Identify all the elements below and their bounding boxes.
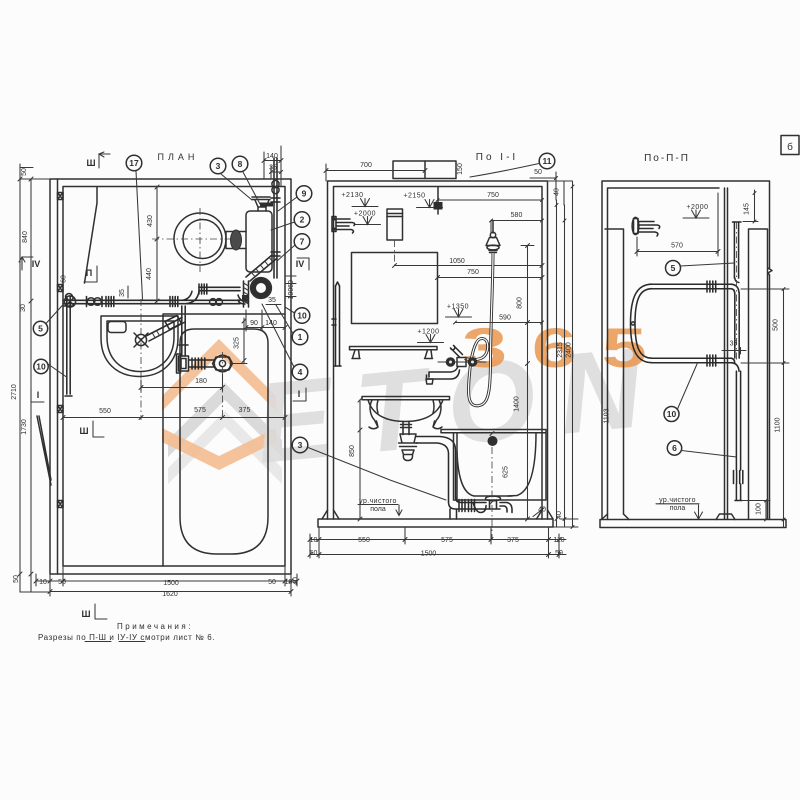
svg-text:6: 6 xyxy=(672,443,677,453)
svg-text:Ш: Ш xyxy=(86,158,95,168)
svg-text:+2000: +2000 xyxy=(686,204,708,211)
svg-text:90: 90 xyxy=(250,320,258,327)
svg-text:575: 575 xyxy=(194,407,206,414)
svg-text:ур.чистого: ур.чистого xyxy=(659,497,696,504)
svg-text:I: I xyxy=(298,389,301,399)
svg-text:700: 700 xyxy=(360,162,372,169)
svg-text:7: 7 xyxy=(300,237,305,247)
svg-text:35: 35 xyxy=(268,297,276,304)
svg-text:430: 430 xyxy=(147,215,154,227)
svg-text:375: 375 xyxy=(239,407,251,414)
svg-text:2400: 2400 xyxy=(566,342,573,358)
svg-text:840: 840 xyxy=(22,231,29,243)
svg-text:100: 100 xyxy=(756,503,763,515)
svg-text:35: 35 xyxy=(119,289,126,297)
svg-text:500: 500 xyxy=(773,319,780,331)
svg-text:60: 60 xyxy=(61,275,68,283)
svg-text:По-П-П: По-П-П xyxy=(644,153,690,164)
svg-text:1400: 1400 xyxy=(514,396,521,412)
svg-text:+2130: +2130 xyxy=(341,192,363,199)
svg-text:140: 140 xyxy=(266,153,278,160)
svg-text:+2000: +2000 xyxy=(354,211,376,218)
svg-text:ПЛАН: ПЛАН xyxy=(158,152,199,162)
svg-text:50: 50 xyxy=(13,575,20,583)
svg-text:1: 1 xyxy=(298,332,303,342)
svg-text:145: 145 xyxy=(744,203,751,215)
svg-text:2: 2 xyxy=(300,215,305,225)
svg-text:580: 580 xyxy=(511,212,523,219)
svg-text:50: 50 xyxy=(21,168,28,176)
svg-text:5: 5 xyxy=(38,324,43,334)
svg-text:Ш: Ш xyxy=(79,426,88,436)
svg-text:IV: IV xyxy=(32,259,41,269)
svg-text:1050: 1050 xyxy=(449,258,465,265)
svg-text:пола: пола xyxy=(670,505,686,512)
svg-text:ур.чистого: ур.чистого xyxy=(359,498,397,505)
svg-text:1103: 1103 xyxy=(604,408,611,423)
svg-text:+1200: +1200 xyxy=(417,329,439,336)
svg-text:375: 375 xyxy=(507,537,519,544)
svg-text:Примечания:: Примечания: xyxy=(117,622,193,631)
svg-text:2710: 2710 xyxy=(11,384,18,400)
svg-text:625: 625 xyxy=(503,466,510,478)
svg-text:+2150: +2150 xyxy=(403,193,425,200)
svg-text:150: 150 xyxy=(457,163,464,175)
svg-text:750: 750 xyxy=(467,269,479,276)
svg-text:10: 10 xyxy=(36,362,46,372)
svg-text:1730: 1730 xyxy=(21,419,28,435)
svg-text:IV: IV xyxy=(296,259,305,269)
svg-text:40: 40 xyxy=(554,188,561,196)
svg-text:17: 17 xyxy=(129,158,139,168)
svg-text:180: 180 xyxy=(195,378,207,385)
svg-text:590: 590 xyxy=(499,315,511,322)
svg-text:I: I xyxy=(37,390,40,400)
svg-text:2315: 2315 xyxy=(557,342,564,358)
svg-text:35: 35 xyxy=(730,341,738,348)
svg-text:пола: пола xyxy=(370,506,386,513)
svg-text:Разрезы по П-Ш и IУ-IУ смотри: Разрезы по П-Ш и IУ-IУ смотри лист № 6. xyxy=(38,633,215,642)
svg-text:800: 800 xyxy=(517,297,524,309)
svg-text:850: 850 xyxy=(349,445,356,457)
svg-text:10: 10 xyxy=(297,311,307,321)
svg-text:5: 5 xyxy=(671,263,676,273)
svg-text:550: 550 xyxy=(99,408,111,415)
svg-text:б: б xyxy=(787,141,793,153)
svg-text:11: 11 xyxy=(543,156,552,166)
svg-text:1620: 1620 xyxy=(162,591,178,598)
svg-text:4: 4 xyxy=(298,367,303,377)
svg-text:3: 3 xyxy=(216,161,221,171)
svg-text:100: 100 xyxy=(288,288,295,300)
svg-text:8: 8 xyxy=(238,159,243,169)
svg-text:Ш: Ш xyxy=(81,609,90,619)
svg-text:750: 750 xyxy=(487,192,499,199)
svg-text:По I-I: По I-I xyxy=(476,152,518,163)
svg-text:50: 50 xyxy=(534,169,542,176)
svg-text:35: 35 xyxy=(269,165,277,172)
svg-text:10: 10 xyxy=(667,409,677,419)
svg-text:325: 325 xyxy=(234,337,241,349)
svg-text:3: 3 xyxy=(298,440,303,450)
svg-text:575: 575 xyxy=(441,537,453,544)
svg-text:570: 570 xyxy=(671,243,683,250)
svg-text:440: 440 xyxy=(146,268,153,280)
svg-text:1100: 1100 xyxy=(775,417,782,432)
svg-text:9: 9 xyxy=(302,189,307,199)
svg-text:50: 50 xyxy=(268,579,276,586)
svg-text:П: П xyxy=(86,268,92,278)
svg-text:10: 10 xyxy=(39,579,47,586)
svg-text:550: 550 xyxy=(358,537,370,544)
svg-text:30: 30 xyxy=(20,304,27,312)
